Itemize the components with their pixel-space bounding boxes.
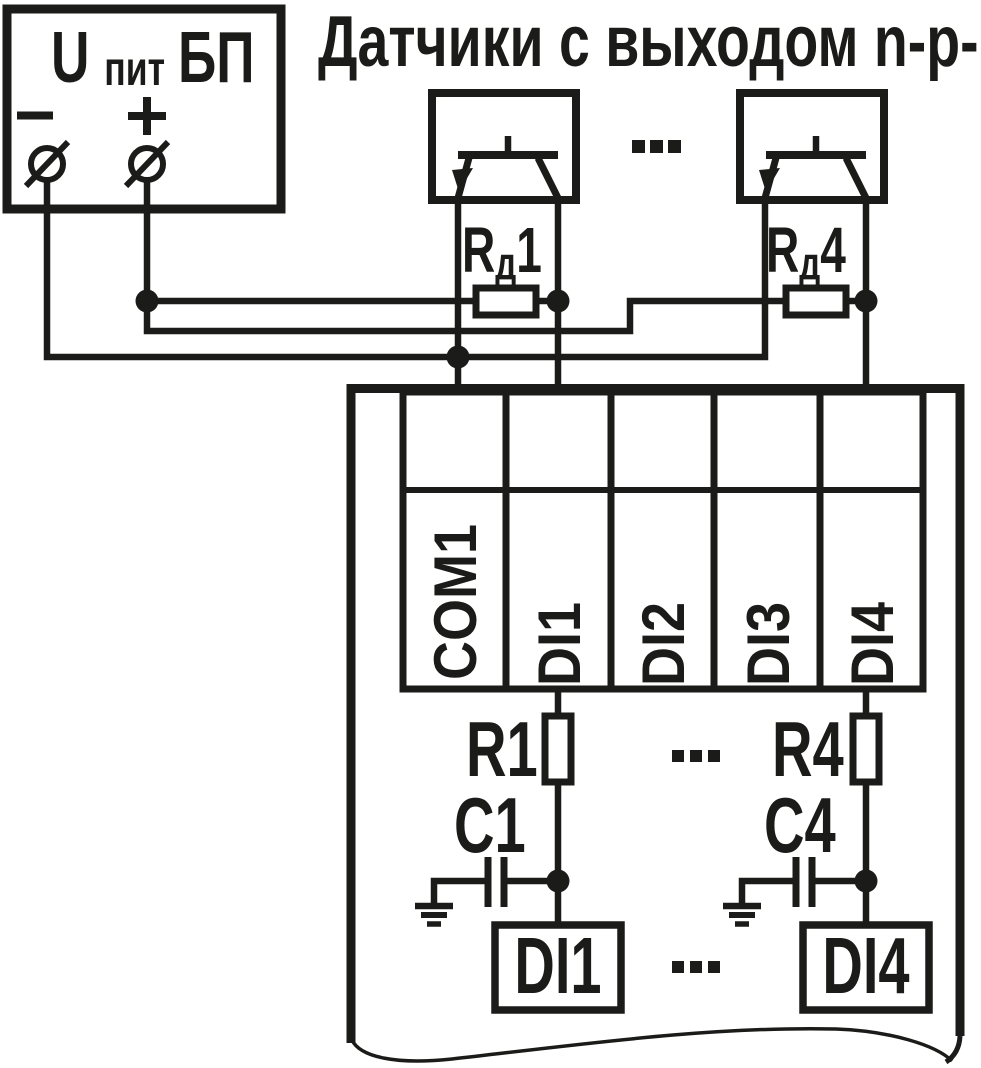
sensors-ellipsis-icon: ...	[632, 140, 681, 153]
voltage-label: U пит	[51, 18, 165, 98]
resistor-rd1-label: Rд1	[462, 215, 542, 290]
junction-dot	[136, 290, 159, 313]
voltage-subscript: пит	[104, 42, 165, 95]
capacitor-c1-label: C1	[454, 782, 526, 869]
svg-text:DI4: DI4	[822, 920, 910, 1010]
inputs-ellipsis-icon: ...	[672, 961, 720, 973]
wire-c4-to-ground	[742, 881, 796, 906]
resistor-rd4-body	[786, 288, 846, 315]
terminal-label-com1: COM1	[422, 524, 489, 680]
terminal-label-di2: DI2	[630, 602, 697, 686]
svg-text:DI1: DI1	[514, 920, 601, 1010]
power-supply-name: БП	[178, 18, 255, 98]
ground-icon	[415, 906, 453, 924]
svg-text:DI2: DI2	[630, 602, 697, 686]
terminal-label-di3: DI3	[735, 602, 802, 686]
resistor-rd4-label: Rд4	[766, 215, 846, 290]
svg-text:БП: БП	[178, 18, 255, 98]
npn-transistor-icon	[452, 136, 558, 198]
internal-input-di4: DI4	[803, 920, 929, 1010]
terminal-strip: COM1 DI1 DI2 DI3 DI4	[403, 392, 923, 689]
junction-dot	[447, 346, 470, 369]
sensor-1	[432, 93, 576, 200]
svg-text:C4: C4	[764, 782, 836, 869]
wire-positive-rail	[147, 180, 476, 301]
sensor-2	[740, 93, 884, 200]
resistors-ellipsis-icon: ...	[672, 750, 720, 762]
svg-text:DI3: DI3	[735, 602, 802, 686]
wiring-diagram: Датчики с выходом n-p-n U пит БП	[0, 0, 981, 1068]
svg-text:C1: C1	[454, 782, 526, 869]
power-supply-unit: U пит БП	[7, 9, 281, 209]
svg-text:DI1: DI1	[526, 602, 593, 686]
page-title-text: Датчики с выходом n-p-n	[318, 1, 981, 82]
junction-dot	[547, 290, 570, 313]
di4-block-label: DI4	[822, 920, 910, 1010]
ground-icon	[723, 906, 761, 924]
junction-dot	[855, 870, 878, 893]
resistor-r1-body	[545, 716, 571, 782]
voltage-base: U	[51, 18, 89, 98]
svg-text:Rд1: Rд1	[462, 215, 542, 290]
resistor-r1: R1	[466, 706, 571, 793]
terminal-label-di4: DI4	[839, 602, 906, 686]
resistor-r1-label: R1	[466, 706, 538, 793]
internal-input-di1: DI1	[495, 920, 621, 1010]
screw-terminal-plus-icon	[126, 142, 168, 186]
svg-text:R1: R1	[466, 706, 538, 793]
resistor-rd1: Rд1	[462, 215, 542, 315]
resistor-r4-label: R4	[772, 706, 844, 793]
di1-block-label: DI1	[514, 920, 601, 1010]
torn-edge-wave	[352, 1029, 952, 1061]
terminal-label-di1: DI1	[526, 602, 593, 686]
svg-text:DI4: DI4	[839, 602, 906, 686]
wire-positive-branch	[147, 301, 786, 331]
resistor-r4-body	[853, 716, 879, 782]
device-module: COM1 DI1 DI2 DI3 DI4 R1	[351, 389, 960, 1063]
wire-c1-to-ground	[434, 881, 488, 906]
resistor-rd1-body	[476, 288, 536, 315]
junction-dot	[547, 870, 570, 893]
schematic-page: Датчики с выходом n-p-n U пит БП	[0, 0, 981, 1068]
capacitor-c4-label: C4	[764, 782, 836, 869]
svg-text:U пит: U пит	[51, 18, 165, 98]
plus-sign-icon	[128, 97, 166, 135]
screw-terminal-minus-icon	[26, 142, 68, 186]
junction-dot	[855, 290, 878, 313]
svg-text:R4: R4	[772, 706, 844, 793]
npn-transistor-icon	[759, 136, 866, 198]
svg-text:COM1: COM1	[422, 524, 489, 680]
resistor-r4: R4	[772, 706, 879, 793]
page-title: Датчики с выходом n-p-n	[318, 1, 981, 82]
svg-text:Rд4: Rд4	[766, 215, 846, 290]
